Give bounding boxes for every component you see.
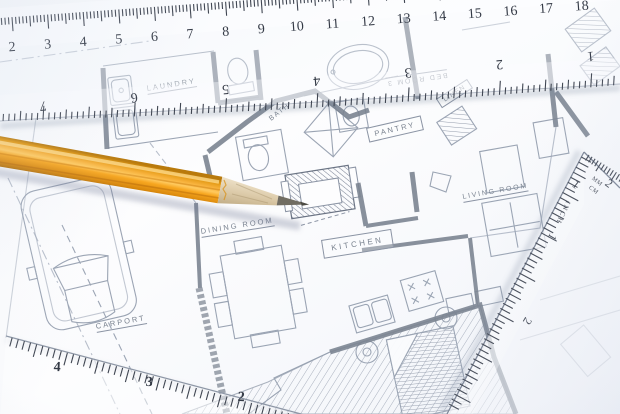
photo-canvas: LAUNDRY BATH PANTRY LINEN LIVING ROOM BE…	[0, 0, 620, 414]
triangle-inch-2: 2	[519, 315, 535, 328]
triangle-inch-1: 1	[544, 231, 560, 244]
triangle-cm-2: 2	[602, 176, 616, 192]
triangle-ruler-labels: 1 MM CM 2 INCH 1 2	[0, 0, 620, 414]
triangle-inch-label: INCH	[554, 200, 572, 226]
triangle-cm-1: 1	[569, 177, 583, 193]
